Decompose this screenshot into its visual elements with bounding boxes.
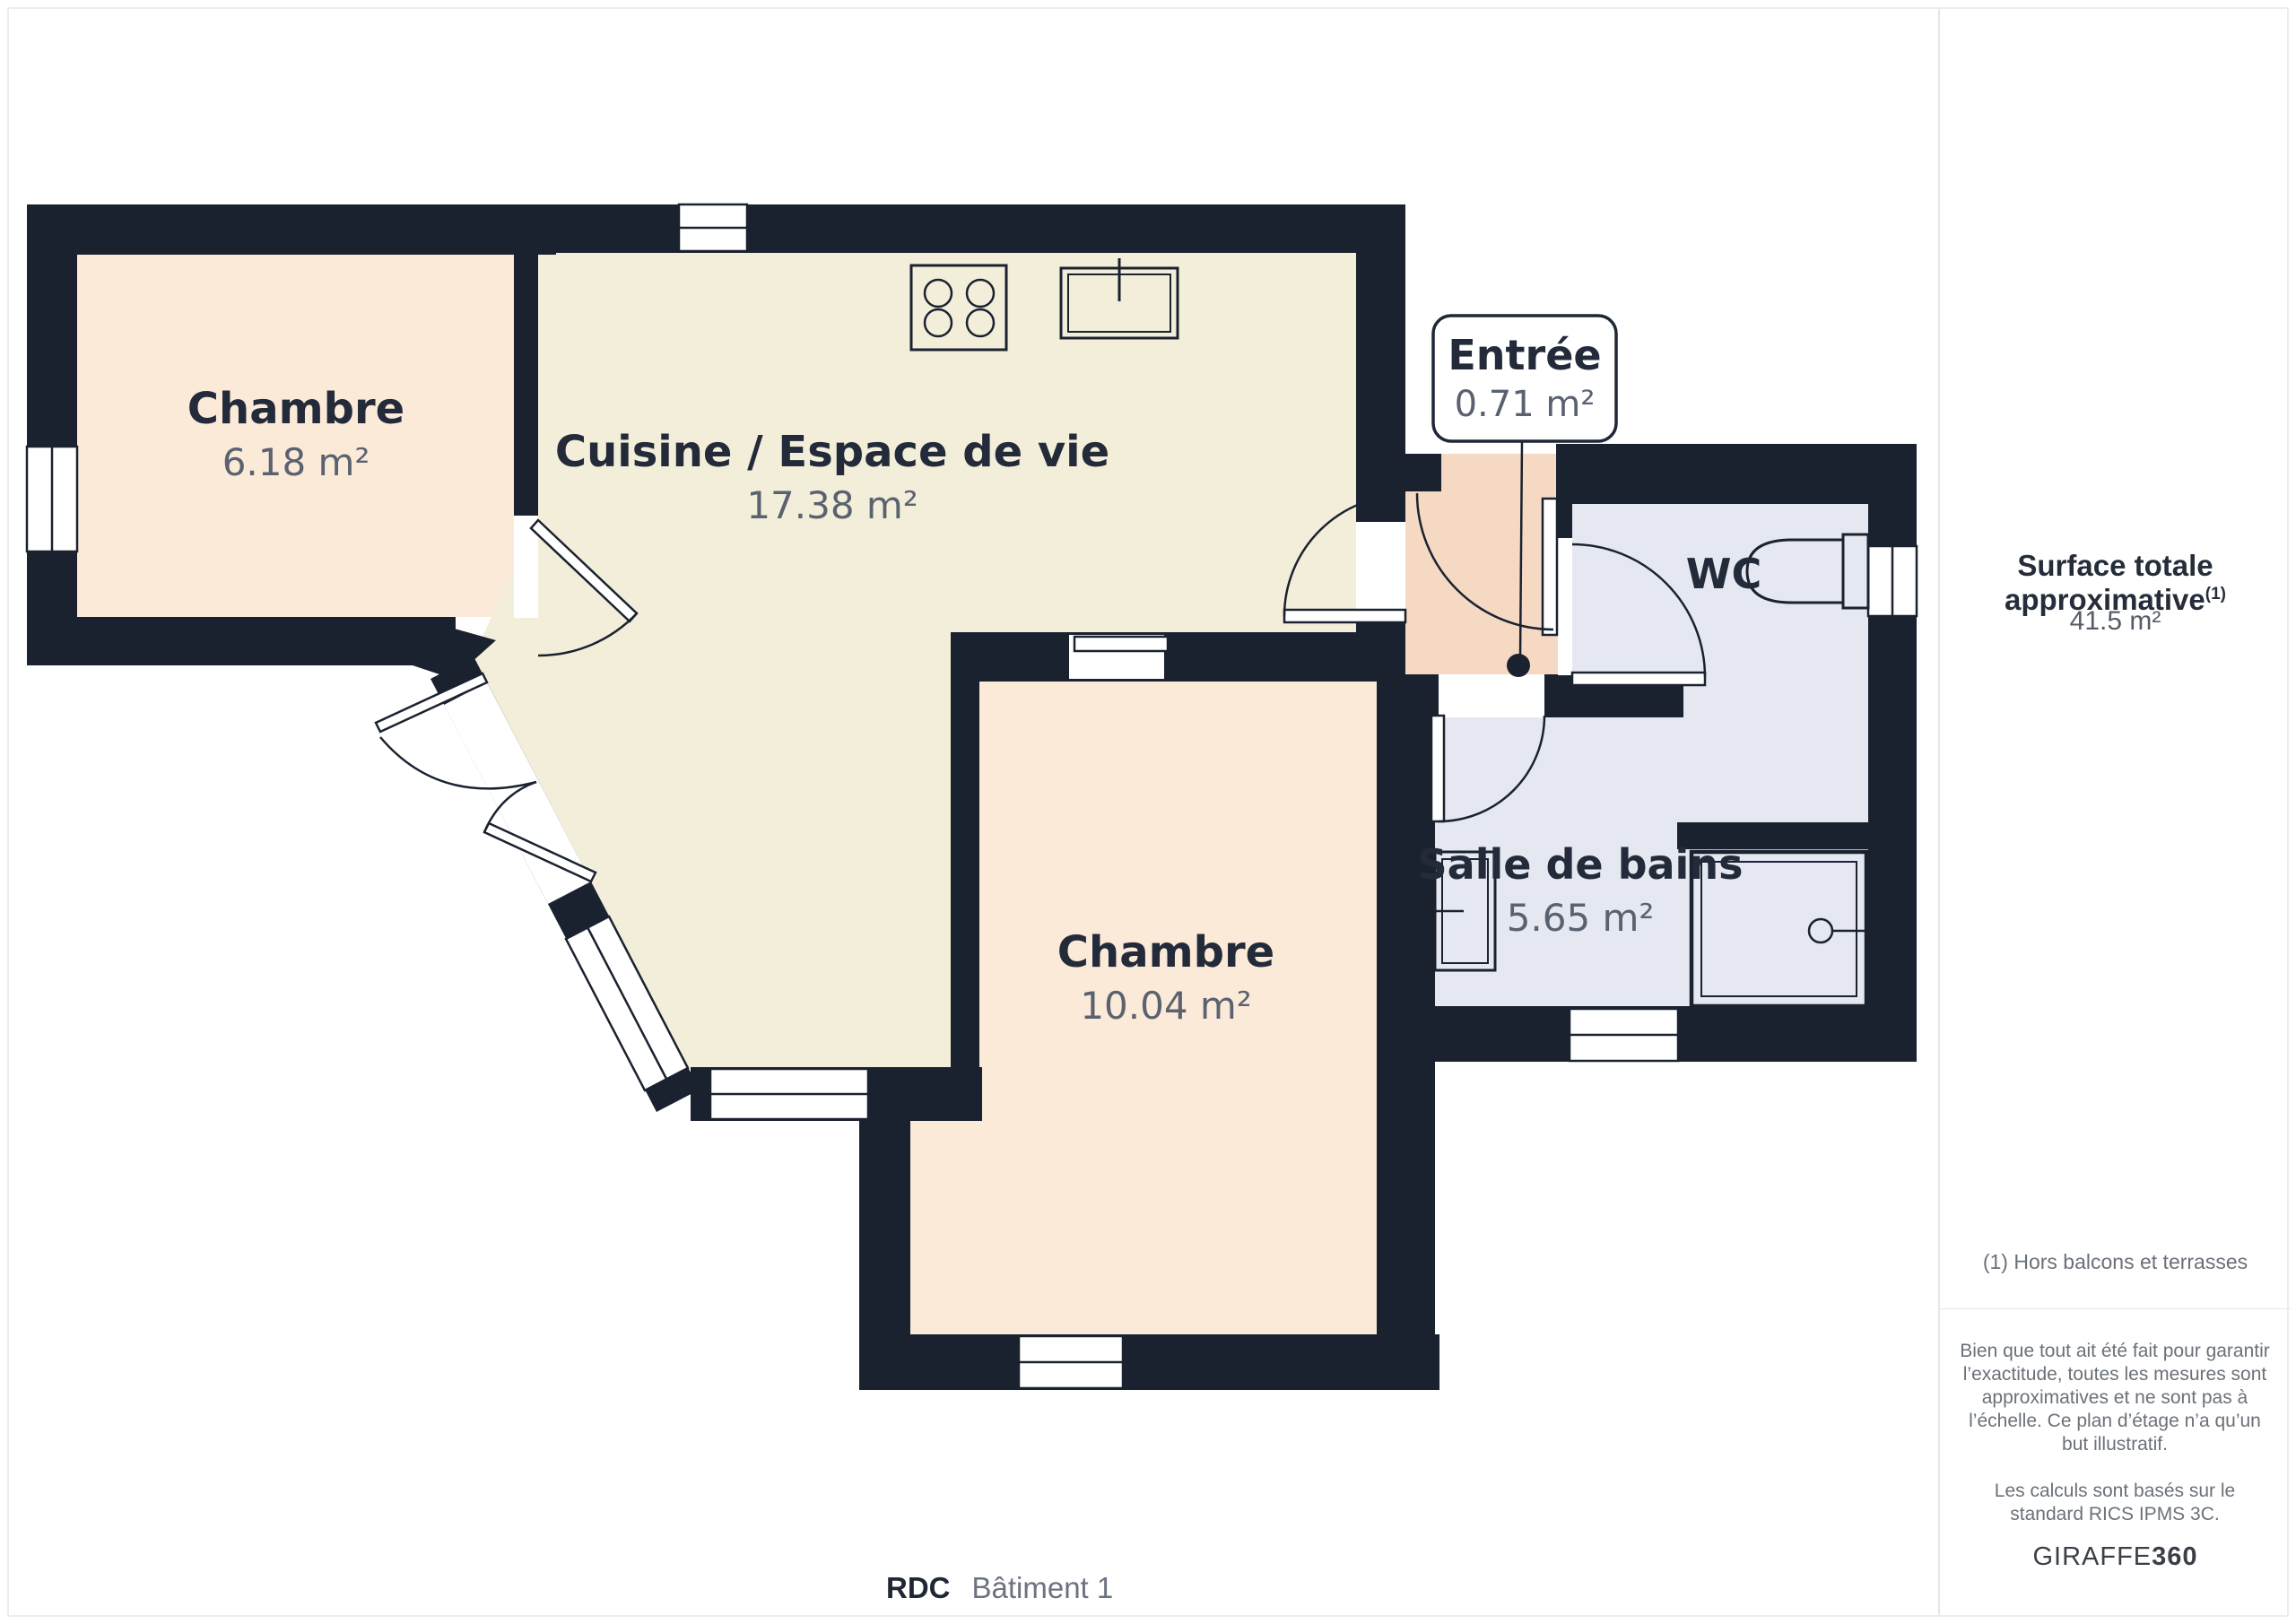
sidebar-divider bbox=[1940, 1308, 2291, 1309]
wall bbox=[1556, 444, 1917, 504]
building-label: Bâtiment 1 bbox=[972, 1571, 1114, 1605]
sidebar-disclaimer: Bien que tout ait été fait pour garantir… bbox=[1957, 1340, 2273, 1456]
giraffe360-logo-suffix: 360 bbox=[2152, 1542, 2197, 1571]
room-area-cuisine: 17.38 m² bbox=[746, 483, 918, 527]
wall bbox=[859, 1334, 1439, 1390]
wall bbox=[1868, 444, 1917, 1062]
door-opening bbox=[1439, 674, 1544, 717]
door-leaf bbox=[1572, 673, 1705, 685]
room-area-chambre-1: 6.18 m² bbox=[222, 440, 370, 484]
sidebar-footnote: (1) Hors balcons et terrasses bbox=[1940, 1250, 2291, 1274]
room-floor-chambre-1 bbox=[77, 253, 514, 617]
door-leaf bbox=[1543, 499, 1557, 635]
giraffe360-logo-name: GIRAFFE bbox=[2032, 1542, 2152, 1571]
room-label-entree: Entrée bbox=[1448, 331, 1601, 379]
floor-footer: RDC Bâtiment 1 bbox=[886, 1571, 1113, 1605]
wall bbox=[500, 204, 1405, 253]
giraffe360-logo: GIRAFFE360 bbox=[1940, 1542, 2291, 1572]
wall-jamb bbox=[1404, 454, 1441, 491]
wall bbox=[27, 204, 556, 255]
room-area-chambre-2: 10.04 m² bbox=[1080, 984, 1251, 1028]
wall bbox=[27, 204, 77, 665]
sidebar-standard: Les calculs sont basés sur le standard R… bbox=[1957, 1480, 2273, 1526]
room-area-entree: 0.71 m² bbox=[1455, 384, 1596, 425]
door-leaf bbox=[1074, 637, 1168, 651]
door-leaf bbox=[1431, 716, 1444, 821]
floorplan-drawing: Chambre 6.18 m² Cuisine / Espace de vie … bbox=[0, 0, 1938, 1624]
wall bbox=[1356, 204, 1405, 522]
surface-total-value: 41.5 m² bbox=[1940, 606, 2291, 637]
surface-total-note-ref: (1) bbox=[2205, 585, 2226, 604]
toilet-icon bbox=[1747, 534, 1868, 608]
door-opening bbox=[1558, 538, 1572, 675]
floor-label: RDC bbox=[886, 1571, 951, 1605]
room-label-chambre-1: Chambre bbox=[187, 384, 404, 434]
room-label-wc: WC bbox=[1686, 550, 1762, 598]
floorplan-page: Chambre 6.18 m² Cuisine / Espace de vie … bbox=[0, 0, 2296, 1624]
door-opening bbox=[1356, 522, 1405, 617]
room-label-chambre-2: Chambre bbox=[1057, 927, 1274, 977]
room-label-cuisine: Cuisine / Espace de vie bbox=[555, 427, 1109, 477]
wall bbox=[27, 617, 456, 665]
sidebar: Surface totale approximative(1) 41.5 m² … bbox=[1938, 7, 2291, 1617]
door-leaf bbox=[1284, 610, 1405, 622]
room-area-salle-de-bains: 5.65 m² bbox=[1507, 896, 1655, 940]
wall bbox=[951, 632, 1405, 682]
room-label-salle-de-bains: Salle de bains bbox=[1418, 840, 1744, 889]
wall bbox=[951, 632, 979, 1081]
camera-point-icon bbox=[1507, 654, 1530, 677]
